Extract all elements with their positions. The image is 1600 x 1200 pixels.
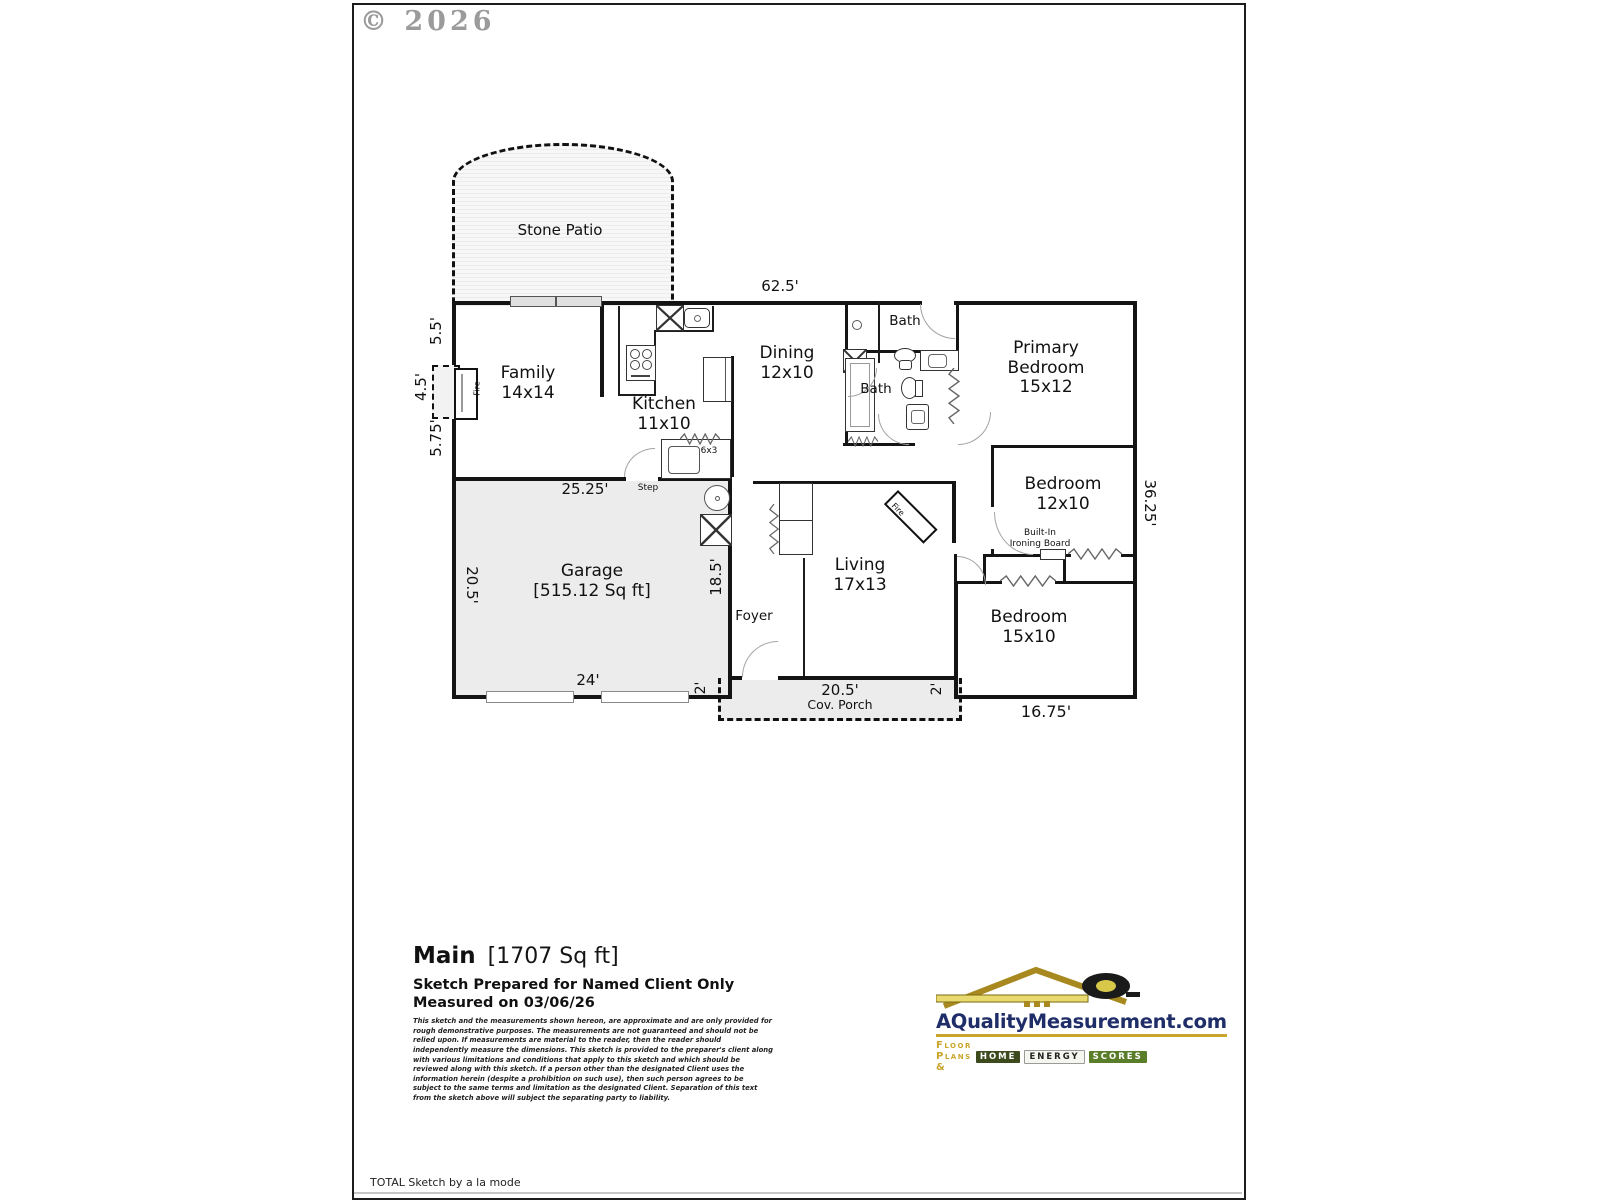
brand-name: AQualityMeasurement.com (936, 1010, 1227, 1037)
tape-measure-roof-icon (936, 952, 1141, 1010)
room-size: 12x10 (991, 495, 1135, 515)
ironing-board-label: Built-In Ironing Board (995, 528, 1085, 550)
dim-garage-top: 25.25' (545, 480, 625, 498)
closet-zigzag (1068, 548, 1122, 560)
garage-door-left (486, 691, 574, 703)
room-label-primary-bedroom: Primary Bedroom 15x12 (960, 339, 1132, 398)
wall-laundry-closet (878, 301, 880, 363)
fridge-door-line (725, 358, 726, 401)
burner (630, 360, 640, 370)
room-name: Kitchen (605, 395, 723, 415)
sink-drain (694, 315, 701, 322)
wall-south-bedroom (954, 695, 1137, 699)
room-name: Bedroom (991, 475, 1135, 495)
room-size: 12x10 (731, 364, 843, 384)
room-name: Family (456, 364, 600, 384)
room-size: 15x12 (960, 378, 1132, 398)
room-name: Bedroom (954, 608, 1104, 628)
room-label-kitchen: Kitchen 11x10 (605, 395, 723, 434)
room-size: 17x13 (790, 576, 930, 596)
burner (642, 360, 652, 370)
burner (642, 349, 652, 359)
door-gap-garage (626, 477, 658, 481)
pedestal-sink-base (899, 360, 912, 370)
dim-left-lower: 5.75' (427, 408, 445, 468)
x-icon (701, 515, 731, 545)
room-label-bedroom-front: Bedroom 15x10 (954, 608, 1104, 647)
room-label-bath-hall: Bath (880, 313, 930, 329)
room-size: 14x14 (456, 384, 600, 404)
opening-zigzag (848, 436, 878, 447)
stone-patio-label: Stone Patio (452, 222, 668, 239)
bath2-sink-basin (911, 410, 925, 424)
garage-door-right (601, 691, 689, 703)
room-label-dining: Dining 12x10 (731, 344, 843, 383)
summary-block: Main[1707 Sq ft] Sketch Prepared for Nam… (413, 943, 813, 1104)
room-name: Living (790, 556, 930, 576)
toilet-tank (915, 380, 923, 397)
furnace-x-box (700, 514, 732, 546)
vanity-sink (928, 354, 947, 368)
footer-divider (354, 1192, 1242, 1194)
dim-porch-left: 2' (693, 673, 709, 703)
wall-living-east (952, 481, 956, 543)
room-name: Dining (731, 344, 843, 364)
dim-top: 62.5' (740, 277, 820, 295)
counter-right-edge (712, 306, 714, 332)
pantry-size-label: 6x3 (694, 446, 724, 456)
disclaimer-text: This sketch and the measurements shown h… (413, 1017, 773, 1104)
dim-garage-right: 18.5' (707, 545, 725, 609)
ironing-line: Ironing Board (995, 539, 1085, 550)
step-label: Step (628, 483, 668, 493)
level-name: Main (413, 943, 476, 969)
ironing-line: Built-In (995, 528, 1085, 539)
wall-primary-south (991, 445, 1137, 448)
summary-title: Main[1707 Sq ft] (413, 943, 813, 969)
dim-right: 36.25' (1141, 468, 1159, 538)
wall-garage-east (728, 477, 732, 699)
pantry-6x3 (661, 439, 731, 479)
room-name: Bedroom (960, 359, 1132, 379)
living-closet (779, 483, 813, 555)
window-mullion (555, 297, 557, 306)
dim-garage-left: 20.5' (463, 553, 481, 617)
burner (630, 349, 640, 359)
porch-label: Cov. Porch (800, 697, 880, 712)
wall-family-kitchen (600, 301, 604, 397)
room-label-foyer: Foyer (726, 608, 782, 624)
room-label-garage: Garage [515.12 Sq ft] (456, 562, 728, 601)
stove-controls (631, 375, 650, 377)
footer-note: TOTAL Sketch by a la mode (370, 1176, 521, 1189)
closet-shelf-line (780, 520, 812, 521)
closet-zigzag (1000, 575, 1056, 587)
water-heater-center (715, 496, 720, 501)
tile-scores: SCORES (1089, 1051, 1147, 1063)
company-logo: AQualityMeasurement.com Floor Plans & HO… (936, 952, 1146, 1073)
brand-tagline: Floor Plans & HOME ENERGY SCORES (936, 1040, 1146, 1073)
prepared-for-line: Sketch Prepared for Named Client Only (413, 977, 813, 993)
stove (626, 345, 656, 381)
water-heater (704, 485, 730, 511)
closet-zigzag-vertical (769, 504, 779, 554)
room-label-bedroom-mid: Bedroom 12x10 (991, 475, 1135, 514)
kitchen-sink (684, 308, 710, 328)
skylight-x-box (656, 305, 684, 331)
room-label-bath-primary: Bath (850, 381, 902, 397)
dim-porch-right: 2' (929, 674, 945, 704)
x-icon (657, 306, 683, 330)
tile-home: HOME (976, 1051, 1021, 1063)
room-size: 15x10 (954, 628, 1104, 648)
dim-bottom-right: 16.75' (1008, 702, 1084, 721)
dim-left-upper: 5.5' (427, 301, 445, 361)
window-family (510, 296, 602, 307)
ironing-board-icon (1040, 549, 1066, 560)
level-area: [1707 Sq ft] (488, 944, 619, 969)
wall-closet-a2 (1121, 554, 1137, 557)
copyright-text: © 2026 (360, 6, 496, 37)
room-label-living: Living 17x13 (790, 556, 930, 595)
bath2-sink (906, 404, 929, 430)
room-label-family: Family 14x14 (456, 364, 600, 403)
sketch-page: © 2026 Stone Patio (0, 0, 1600, 1200)
tagline-prefix: Floor Plans & (936, 1040, 972, 1073)
dim-garage-bottom: 24' (563, 671, 613, 689)
measured-on-line: Measured on 03/06/26 (413, 995, 813, 1011)
tile-energy: ENERGY (1024, 1050, 1084, 1064)
room-size: 11x10 (605, 415, 723, 435)
laundry-fixture (852, 320, 862, 330)
wall-closet-b2 (1055, 581, 1137, 584)
counter-left-edge (618, 306, 620, 396)
opening-zigzag (680, 433, 720, 445)
room-name: Garage (456, 562, 728, 582)
room-name: Primary (960, 339, 1132, 359)
room-size: [515.12 Sq ft] (456, 582, 728, 602)
